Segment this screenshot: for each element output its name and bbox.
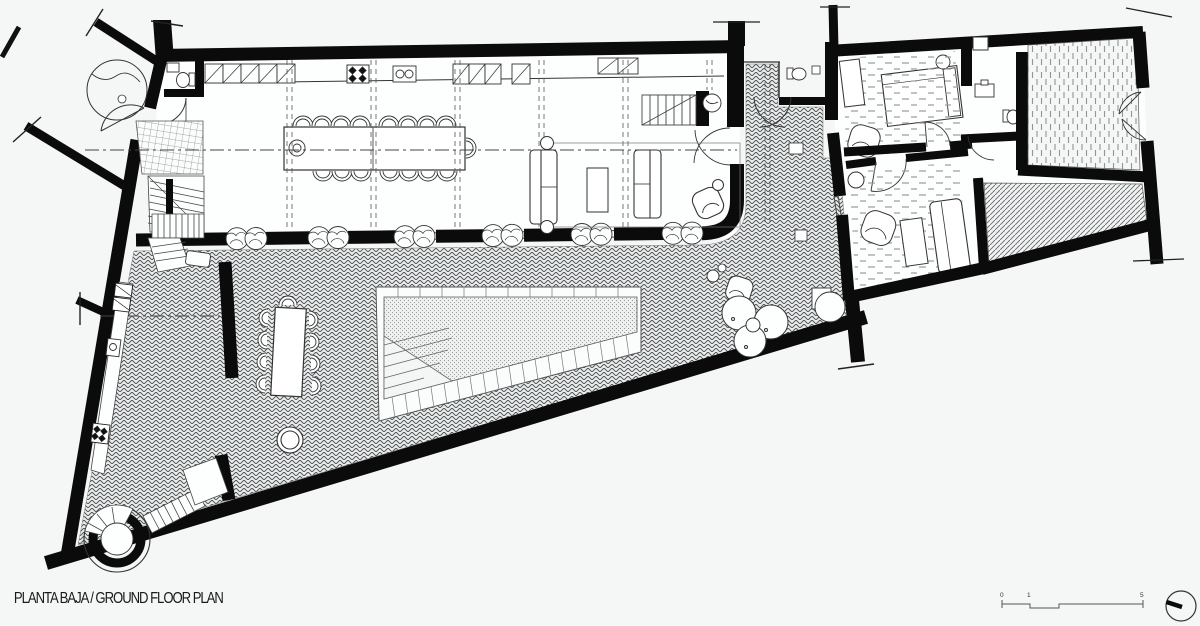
svg-text:1: 1 bbox=[1027, 592, 1031, 599]
svg-text:5: 5 bbox=[1140, 592, 1144, 599]
svg-text:PLANTA BAJA / GROUND FLOOR PLA: PLANTA BAJA / GROUND FLOOR PLAN bbox=[14, 590, 224, 607]
svg-text:0: 0 bbox=[1000, 592, 1004, 599]
